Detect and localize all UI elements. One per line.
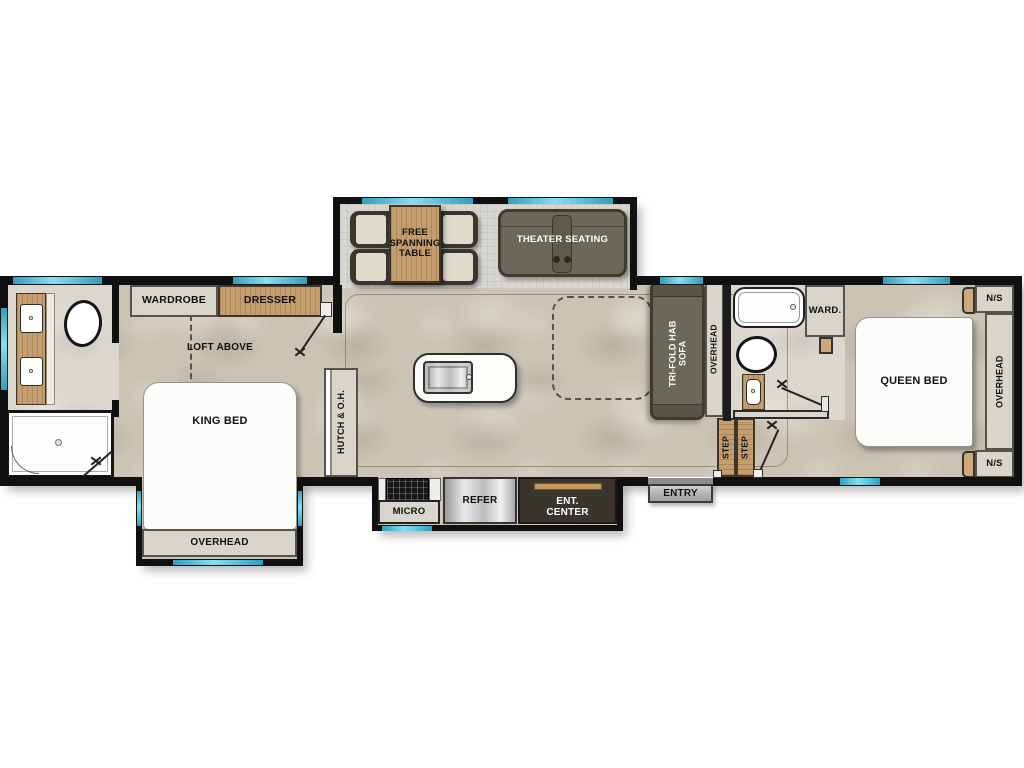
hutch-label: HUTCH & O.H. xyxy=(326,370,356,475)
mid-overhead-label: OVERHEAD xyxy=(707,283,722,415)
shower-drain xyxy=(55,439,62,446)
front-bath-wall-upper xyxy=(112,285,119,343)
bedroom2-door-hinge-stub xyxy=(821,396,829,412)
sofa-armrest-top xyxy=(653,284,702,297)
theater-cupholder xyxy=(553,256,560,263)
stair-wall xyxy=(733,410,829,419)
front-bath-wall-lower xyxy=(112,400,119,417)
nightstand-bottom-label: N/S xyxy=(977,452,1012,476)
window xyxy=(233,277,307,284)
mid-overhead-cabinet: OVERHEAD xyxy=(705,281,724,417)
kitchen-slide-wall-left xyxy=(372,477,378,531)
nightstand-top: N/S xyxy=(975,285,1014,313)
wall-bottom-1 xyxy=(0,477,136,486)
mid-bedroom-door-mark xyxy=(776,378,788,390)
entertainment-center: ENT. CENTER xyxy=(518,477,617,524)
top-slide-wall-left xyxy=(333,197,340,290)
window xyxy=(660,277,703,284)
queen-pillow-top xyxy=(962,287,975,314)
wall-bottom-2 xyxy=(303,477,372,486)
dinette-cushion xyxy=(443,215,473,244)
window xyxy=(382,526,432,531)
queen-pillow-bottom xyxy=(962,451,975,478)
wardrobe-label: WARDROBE xyxy=(132,287,216,315)
hutch-cabinet: HUTCH & O.H. xyxy=(324,368,358,477)
refrigerator: REFER xyxy=(443,477,517,524)
microwave: MICRO xyxy=(378,500,440,524)
stove-cooktop xyxy=(386,478,429,501)
queen-bed-label: QUEEN BED xyxy=(855,374,973,388)
dresser: DRESSER xyxy=(218,285,322,317)
ward-leg xyxy=(819,337,833,354)
dresser-label: DRESSER xyxy=(220,287,320,315)
nightstand-top-label: N/S xyxy=(977,287,1012,311)
entry-door-mark xyxy=(766,419,778,431)
mid-bath-wall xyxy=(723,282,731,421)
nightstand-bottom: N/S xyxy=(975,450,1014,478)
bathtub-drain xyxy=(790,304,796,310)
entry-wall-end-block xyxy=(713,470,722,478)
refrigerator-label: REFER xyxy=(445,479,515,522)
entry-door-hinge-block xyxy=(753,469,763,478)
step-1-label: STEP xyxy=(719,420,734,475)
wall-right xyxy=(1014,276,1022,486)
bedroom-partition-stub xyxy=(333,285,342,333)
window xyxy=(1,308,7,390)
front-bath-sink-2-drain xyxy=(29,369,33,373)
tri-fold-sofa: TRI-FOLD HAB SOFA xyxy=(650,281,705,420)
sofa-bed-fold-out-outline xyxy=(552,296,652,400)
rear-overhead-label: OVERHEAD xyxy=(987,315,1012,448)
top-slide-wall-right xyxy=(630,197,637,290)
window xyxy=(840,478,880,485)
tri-fold-sofa-label: TRI-FOLD HAB SOFA xyxy=(653,297,702,410)
dinette-cushion xyxy=(443,253,473,281)
window xyxy=(508,198,613,204)
island-faucet xyxy=(466,374,472,380)
wall-bottom-3 xyxy=(623,477,648,486)
mid-bath-sink-drain xyxy=(751,389,755,393)
theater-cupholder xyxy=(564,256,571,263)
counter-strip-left xyxy=(378,478,386,501)
king-overhead-label: OVERHEAD xyxy=(144,531,295,555)
entertainment-center-shelf xyxy=(534,483,602,490)
wardrobe-cabinet: WARDROBE xyxy=(130,285,218,317)
shower-door-hinge-mark xyxy=(90,455,102,467)
window xyxy=(362,198,473,204)
king-bed-label: KING BED xyxy=(143,414,297,428)
step-1: STEP xyxy=(717,418,736,477)
dinette-cushion xyxy=(356,215,386,244)
window xyxy=(173,560,263,565)
window xyxy=(137,491,141,526)
window xyxy=(13,277,102,284)
window xyxy=(298,491,302,526)
front-bath-sink-1-drain xyxy=(29,316,33,320)
front-bath-counter-edge xyxy=(46,293,55,405)
loft-above-label: LOFT ABOVE xyxy=(170,341,270,354)
kitchen-slide-wall-right xyxy=(617,477,623,531)
bedroom-door-hinge-block xyxy=(320,302,332,317)
window xyxy=(883,277,950,284)
bedroom-door-mark xyxy=(294,346,306,358)
ward-label: WARD. xyxy=(807,287,843,335)
step-2-label: STEP xyxy=(738,420,753,475)
microwave-label: MICRO xyxy=(380,502,438,522)
theater-seating-label: THEATER SEATING xyxy=(501,233,624,247)
theater-seating: THEATER SEATING xyxy=(498,209,627,277)
free-spanning-table-label: FREE SPANNING TABLE xyxy=(391,207,439,281)
entry-threshold xyxy=(648,478,713,484)
ward-cabinet: WARD. xyxy=(805,285,845,337)
entertainment-center-label: ENT. CENTER xyxy=(520,491,615,523)
entry-label: ENTRY xyxy=(650,486,711,501)
dinette-cushion xyxy=(356,253,386,281)
counter-strip-right xyxy=(429,478,441,501)
floorplan-canvas: WARDROBE DRESSER LOFT ABOVE KING BED OVE… xyxy=(0,0,1024,768)
king-bed xyxy=(143,382,297,530)
king-overhead-cabinet: OVERHEAD xyxy=(142,529,297,557)
rear-overhead-cabinet: OVERHEAD xyxy=(985,313,1014,450)
entry-step-box: ENTRY xyxy=(648,484,713,503)
free-spanning-table: FREE SPANNING TABLE xyxy=(389,205,441,283)
